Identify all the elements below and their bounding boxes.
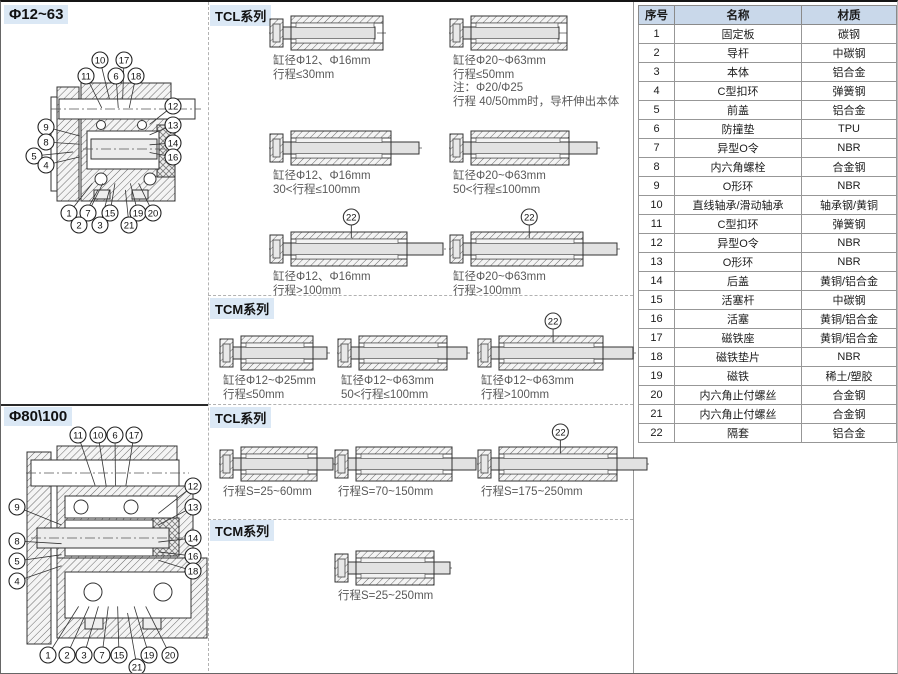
callout-marker: 19 <box>141 647 157 663</box>
cylinder-caption: 缸径Φ12、Φ16mm行程≤30mm <box>273 55 371 82</box>
table-cell: NBR <box>802 253 897 272</box>
svg-text:17: 17 <box>129 430 140 441</box>
divider-middle-halves <box>208 404 633 405</box>
cylinder-caption: 行程S=175~250mm <box>481 486 583 500</box>
table-row: 12异型O令NBR <box>639 234 897 253</box>
table-row: 7异型O令NBR <box>639 139 897 158</box>
caption-line: 50<行程≤100mm <box>453 184 546 198</box>
callout-22: 22 <box>521 209 537 225</box>
table-cell: 20 <box>639 386 675 405</box>
svg-text:17: 17 <box>119 55 130 66</box>
caption-line: 行程≤30mm <box>273 69 371 83</box>
cylinder-figure-tcl-top-4 <box>449 129 601 176</box>
svg-text:6: 6 <box>112 430 117 441</box>
svg-text:21: 21 <box>132 662 143 673</box>
cylinder-figure-tcl-top-6: 22 <box>449 208 621 277</box>
table-cell: 合金钢 <box>802 158 897 177</box>
series-header-tcl-bottom: TCL系列 <box>210 407 271 428</box>
cylinder-figure-tcl-top-3 <box>269 129 423 176</box>
svg-text:8: 8 <box>43 137 48 148</box>
table-cell: 直线轴承/滑动轴承 <box>675 196 802 215</box>
callout-marker: 11 <box>70 427 86 443</box>
svg-text:6: 6 <box>113 71 118 82</box>
table-row: 1固定板碳钢 <box>639 25 897 44</box>
table-cell: 黄铜/铝合金 <box>802 329 897 348</box>
callout-marker: 13 <box>165 117 181 133</box>
cylinder-caption: 缸径Φ20~Φ63mm50<行程≤100mm <box>453 170 546 197</box>
table-cell: 16 <box>639 310 675 329</box>
svg-text:2: 2 <box>76 220 81 231</box>
cross-section-drawing-phi80-100: 111061712913814516418123715192021 <box>1 422 208 674</box>
table-row: 19磁铁稀土/塑胶 <box>639 367 897 386</box>
table-cell: 弹簧钢 <box>802 215 897 234</box>
callout-marker: 10 <box>92 52 108 68</box>
callout-marker: 12 <box>165 98 181 114</box>
table-cell: 活塞 <box>675 310 802 329</box>
table-cell: 黄铜/铝合金 <box>802 310 897 329</box>
table-row: 22隔套铝合金 <box>639 424 897 443</box>
svg-text:22: 22 <box>524 212 535 223</box>
svg-text:22: 22 <box>346 212 357 223</box>
cylinder-caption: 行程S=25~250mm <box>338 590 433 604</box>
svg-text:22: 22 <box>555 427 566 438</box>
divider-left-sections <box>1 404 208 406</box>
callout-marker: 1 <box>40 647 56 663</box>
callout-marker: 4 <box>9 573 25 589</box>
svg-text:9: 9 <box>14 502 19 513</box>
table-cell: 异型O令 <box>675 139 802 158</box>
table-row: 20内六角止付螺丝合金钢 <box>639 386 897 405</box>
svg-text:13: 13 <box>188 502 199 513</box>
table-cell: C型扣环 <box>675 82 802 101</box>
table-cell: 铝合金 <box>802 101 897 120</box>
table-cell: 6 <box>639 120 675 139</box>
callout-marker: 20 <box>162 647 178 663</box>
table-cell: 中碳钢 <box>802 44 897 63</box>
svg-text:15: 15 <box>105 208 116 219</box>
series-header-tcm-top: TCM系列 <box>210 298 274 319</box>
table-cell: 导杆 <box>675 44 802 63</box>
cross-section-drawing-phi12-63: 101711618129138145164171519202321 <box>1 27 208 239</box>
table-cell: 8 <box>639 158 675 177</box>
callout-marker: 3 <box>76 647 92 663</box>
cylinder-caption: 缸径Φ12、Φ16mm30<行程≤100mm <box>273 170 371 197</box>
svg-text:20: 20 <box>165 650 176 661</box>
table-cell: 17 <box>639 329 675 348</box>
series-header-tcm-bottom: TCM系列 <box>210 520 274 541</box>
table-header-cell: 序号 <box>639 6 675 25</box>
table-cell: 异型O令 <box>675 234 802 253</box>
table-cell: 11 <box>639 215 675 234</box>
caption-line: 缸径Φ12、Φ16mm <box>273 55 371 69</box>
table-cell: 10 <box>639 196 675 215</box>
table-row: 2导杆中碳钢 <box>639 44 897 63</box>
table-row: 8内六角螺栓合金钢 <box>639 158 897 177</box>
svg-text:2: 2 <box>64 650 69 661</box>
table-cell: 22 <box>639 424 675 443</box>
callout-marker: 7 <box>94 647 110 663</box>
table-header-cell: 材质 <box>802 6 897 25</box>
svg-text:5: 5 <box>31 151 36 162</box>
caption-line: 缸径Φ20~Φ63mm <box>453 271 546 285</box>
callout-marker: 13 <box>185 499 201 515</box>
svg-text:3: 3 <box>97 220 102 231</box>
svg-text:11: 11 <box>73 430 83 441</box>
cylinder-caption: 缸径Φ12~Φ63mm行程>100mm <box>481 375 574 402</box>
svg-text:12: 12 <box>188 481 199 492</box>
table-cell: 本体 <box>675 63 802 82</box>
svg-text:5: 5 <box>14 556 19 567</box>
table-cell: 铝合金 <box>802 63 897 82</box>
table-cell: 内六角螺栓 <box>675 158 802 177</box>
cylinder-caption: 缸径Φ12、Φ16mm行程>100mm <box>273 271 371 298</box>
svg-text:21: 21 <box>124 220 135 231</box>
table-row: 11C型扣环弹簧钢 <box>639 215 897 234</box>
cylinder-figure-tcm-top-9: 22 <box>477 312 637 381</box>
svg-text:19: 19 <box>133 208 144 219</box>
caption-line: 30<行程≤100mm <box>273 184 371 198</box>
table-cell: 21 <box>639 405 675 424</box>
caption-line: 行程S=175~250mm <box>481 486 583 500</box>
callout-marker: 2 <box>71 217 87 233</box>
callout-22: 22 <box>552 424 568 440</box>
callout-marker: 5 <box>9 553 25 569</box>
table-row: 3本体铝合金 <box>639 63 897 82</box>
caption-line: 缸径Φ20~Φ63mm <box>453 170 546 184</box>
caption-line: 缸径Φ12、Φ16mm <box>273 271 371 285</box>
cylinder-figure-tcl-top-1 <box>269 14 387 61</box>
svg-text:14: 14 <box>188 533 199 544</box>
cylinder-caption: 缸径Φ12~Φ25mm行程≤50mm <box>223 375 316 402</box>
caption-line: 缸径Φ20~Φ63mm <box>453 55 619 69</box>
caption-line: 50<行程≤100mm <box>341 389 434 403</box>
callout-marker: 3 <box>92 217 108 233</box>
callout-marker: 6 <box>108 68 124 84</box>
svg-text:8: 8 <box>14 536 19 547</box>
cylinder-caption: 缸径Φ20~Φ63mm行程≤50mm注：Φ20/Φ25行程 40/50mm时，导… <box>453 55 619 109</box>
cylinder-figure-tcm-bottom-13 <box>334 549 454 596</box>
cylinder-figure-tcl-bottom-10 <box>219 445 337 492</box>
table-cell: 19 <box>639 367 675 386</box>
table-row: 4C型扣环弹簧钢 <box>639 82 897 101</box>
svg-text:3: 3 <box>81 650 86 661</box>
table-cell: 后盖 <box>675 272 802 291</box>
table-cell: 15 <box>639 291 675 310</box>
callout-marker: 10 <box>90 427 106 443</box>
table-cell: C型扣环 <box>675 215 802 234</box>
caption-line: 行程S=25~60mm <box>223 486 312 500</box>
divider-tcm-top <box>208 295 633 296</box>
svg-text:1: 1 <box>66 208 71 219</box>
catalog-page: Φ12~63 TCL系列 TCM系列 Φ80\100 TCL系列 TCM系列 1… <box>0 0 898 674</box>
cylinder-caption: 行程S=25~60mm <box>223 486 312 500</box>
table-row: 14后盖黄铜/铝合金 <box>639 272 897 291</box>
table-cell: O形环 <box>675 177 802 196</box>
table-cell: 4 <box>639 82 675 101</box>
divider-tcm-bottom <box>208 519 633 520</box>
callout-marker: 18 <box>128 68 144 84</box>
caption-line: 行程>100mm <box>453 285 546 299</box>
table-cell: 黄铜/铝合金 <box>802 272 897 291</box>
table-row: 21内六角止付螺丝合金钢 <box>639 405 897 424</box>
cylinder-figure-tcl-bottom-11 <box>334 445 480 492</box>
cylinder-figure-tcl-top-5: 22 <box>269 208 447 277</box>
table-row: 15活塞杆中碳钢 <box>639 291 897 310</box>
table-row: 16活塞黄铜/铝合金 <box>639 310 897 329</box>
table-header-row: 序号名称材质 <box>639 6 897 25</box>
table-cell: 固定板 <box>675 25 802 44</box>
cylinder-figure-tcm-top-8 <box>337 334 471 381</box>
table-cell: 12 <box>639 234 675 253</box>
table-cell: 防撞垫 <box>675 120 802 139</box>
table-cell: 5 <box>639 101 675 120</box>
callout-marker: 16 <box>185 548 201 564</box>
cylinder-caption: 缸径Φ20~Φ63mm行程>100mm <box>453 271 546 298</box>
svg-text:13: 13 <box>168 120 179 131</box>
table-cell: 磁铁座 <box>675 329 802 348</box>
svg-text:10: 10 <box>93 430 104 441</box>
table-cell: 14 <box>639 272 675 291</box>
svg-text:18: 18 <box>131 71 142 82</box>
callout-marker: 20 <box>145 205 161 221</box>
callout-marker: 8 <box>38 134 54 150</box>
table-cell: 稀土/塑胶 <box>802 367 897 386</box>
caption-line: 缸径Φ12~Φ25mm <box>223 375 316 389</box>
cylinder-caption: 行程S=70~150mm <box>338 486 433 500</box>
table-cell: 磁铁垫片 <box>675 348 802 367</box>
table-cell: NBR <box>802 177 897 196</box>
svg-text:18: 18 <box>188 566 199 577</box>
table-cell: NBR <box>802 348 897 367</box>
table-cell: 轴承钢/黄铜 <box>802 196 897 215</box>
table-cell: 18 <box>639 348 675 367</box>
table-cell: 中碳钢 <box>802 291 897 310</box>
svg-text:7: 7 <box>85 208 90 219</box>
parts-table: 序号名称材质 1固定板碳钢2导杆中碳钢3本体铝合金4C型扣环弹簧钢5前盖铝合金6… <box>638 5 897 443</box>
svg-text:1: 1 <box>45 650 50 661</box>
table-cell: 隔套 <box>675 424 802 443</box>
caption-line: 行程≤50mm <box>223 389 316 403</box>
callout-marker: 17 <box>126 427 142 443</box>
table-cell: 碳钢 <box>802 25 897 44</box>
table-cell: 磁铁 <box>675 367 802 386</box>
cylinder-figure-tcl-bottom-12: 22 <box>477 423 651 492</box>
svg-text:7: 7 <box>99 650 104 661</box>
svg-text:9: 9 <box>43 122 48 133</box>
callout-marker: 4 <box>38 157 54 173</box>
svg-text:4: 4 <box>14 576 19 587</box>
table-cell: TPU <box>802 120 897 139</box>
caption-line: 行程>100mm <box>481 389 574 403</box>
table-cell: 合金钢 <box>802 405 897 424</box>
table-header-cell: 名称 <box>675 6 802 25</box>
table-cell: 弹簧钢 <box>802 82 897 101</box>
table-row: 18磁铁垫片NBR <box>639 348 897 367</box>
callout-22: 22 <box>343 209 359 225</box>
caption-line: 缸径Φ12~Φ63mm <box>481 375 574 389</box>
caption-line: 缸径Φ12、Φ16mm <box>273 170 371 184</box>
svg-text:12: 12 <box>168 101 179 112</box>
callout-marker: 21 <box>121 217 137 233</box>
table-cell: 3 <box>639 63 675 82</box>
svg-text:11: 11 <box>81 71 91 82</box>
table-cell: NBR <box>802 139 897 158</box>
section-title-phi12-63: Φ12~63 <box>4 5 68 24</box>
table-row: 9O形环NBR <box>639 177 897 196</box>
cylinder-figure-tcm-top-7 <box>219 334 331 381</box>
table-row: 5前盖铝合金 <box>639 101 897 120</box>
callout-22: 22 <box>545 313 561 329</box>
cylinder-figure-tcl-top-2 <box>449 14 571 61</box>
callout-marker: 18 <box>185 563 201 579</box>
callout-marker: 8 <box>9 533 25 549</box>
table-row: 6防撞垫TPU <box>639 120 897 139</box>
svg-text:14: 14 <box>168 138 179 149</box>
callout-marker: 15 <box>111 647 127 663</box>
caption-line: 行程>100mm <box>273 285 371 299</box>
callout-marker: 17 <box>116 52 132 68</box>
svg-text:4: 4 <box>43 160 48 171</box>
caption-line: 行程≤50mm <box>453 69 619 83</box>
series-header-tcl-top: TCL系列 <box>210 5 271 26</box>
svg-text:16: 16 <box>188 551 199 562</box>
table-cell: 合金钢 <box>802 386 897 405</box>
callout-marker: 21 <box>129 659 145 674</box>
table-cell: 7 <box>639 139 675 158</box>
table-row: 13O形环NBR <box>639 253 897 272</box>
table-cell: 前盖 <box>675 101 802 120</box>
table-cell: 活塞杆 <box>675 291 802 310</box>
table-cell: 铝合金 <box>802 424 897 443</box>
svg-text:19: 19 <box>144 650 155 661</box>
callout-marker: 11 <box>78 68 94 84</box>
table-row: 10直线轴承/滑动轴承轴承钢/黄铜 <box>639 196 897 215</box>
callout-marker: 9 <box>38 119 54 135</box>
svg-text:22: 22 <box>548 316 559 327</box>
caption-line: 行程 40/50mm时，导杆伸出本体 <box>453 96 619 110</box>
callout-marker: 14 <box>185 530 201 546</box>
caption-line: 行程S=70~150mm <box>338 486 433 500</box>
caption-line: 注：Φ20/Φ25 <box>453 82 619 96</box>
table-cell: 9 <box>639 177 675 196</box>
callout-marker: 2 <box>59 647 75 663</box>
callout-marker: 6 <box>107 427 123 443</box>
table-cell: 13 <box>639 253 675 272</box>
callout-marker: 16 <box>165 149 181 165</box>
svg-text:10: 10 <box>95 55 106 66</box>
table-cell: 2 <box>639 44 675 63</box>
divider-vertical-dashed <box>208 2 209 674</box>
cylinder-caption: 缸径Φ12~Φ63mm50<行程≤100mm <box>341 375 434 402</box>
table-cell: 内六角止付螺丝 <box>675 405 802 424</box>
table-cell: 内六角止付螺丝 <box>675 386 802 405</box>
svg-text:20: 20 <box>148 208 159 219</box>
svg-text:16: 16 <box>168 152 179 163</box>
svg-text:15: 15 <box>114 650 125 661</box>
table-cell: NBR <box>802 234 897 253</box>
callout-marker: 12 <box>185 478 201 494</box>
callout-marker: 9 <box>9 499 25 515</box>
table-cell: 1 <box>639 25 675 44</box>
caption-line: 缸径Φ12~Φ63mm <box>341 375 434 389</box>
caption-line: 行程S=25~250mm <box>338 590 433 604</box>
table-cell: O形环 <box>675 253 802 272</box>
table-row: 17磁铁座黄铜/铝合金 <box>639 329 897 348</box>
